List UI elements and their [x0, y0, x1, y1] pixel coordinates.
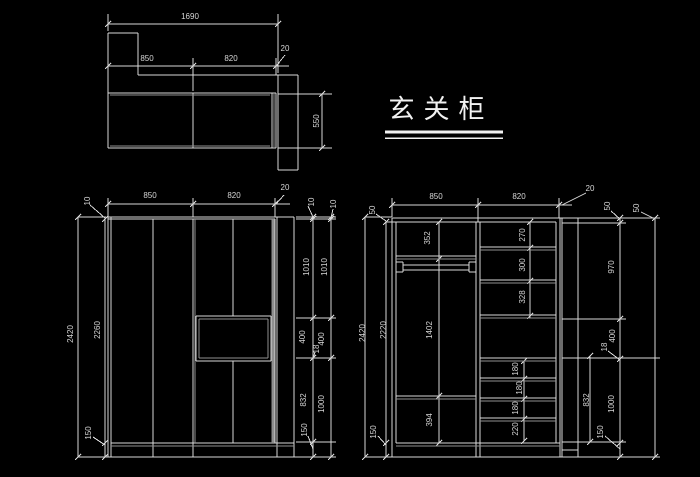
- dim-label: 50: [633, 204, 641, 213]
- dim-label: 400: [318, 332, 326, 345]
- dim-label: 150: [370, 425, 378, 438]
- dim-label: 2420: [67, 325, 75, 343]
- dim-label: 832: [583, 393, 591, 406]
- cad-canvas: 玄关柜 1690 850 820 20 550 850 820 20 2420 …: [0, 0, 700, 477]
- dim-label: 180: [516, 381, 524, 394]
- dim-label: 180: [512, 362, 520, 375]
- dim-label: 1690: [181, 13, 199, 21]
- dim-label: 50: [604, 202, 612, 211]
- dim-label: 300: [519, 258, 527, 271]
- dim-label: 400: [299, 330, 307, 343]
- dim-label: 328: [519, 290, 527, 303]
- dim-label: 20: [586, 185, 595, 193]
- dim-label: 180: [512, 401, 520, 414]
- page-title: 玄关柜: [388, 97, 493, 123]
- dim-label: 150: [597, 425, 605, 438]
- plan-view-lines: [105, 14, 332, 170]
- internal-view-secondary-lines: [396, 250, 560, 446]
- internal-view-lines: [362, 193, 660, 460]
- front-view-secondary-lines: [111, 219, 294, 446]
- dim-label: 50: [369, 206, 377, 215]
- drawing-lines: [0, 0, 700, 477]
- dim-label: 150: [85, 426, 93, 439]
- dim-label: 850: [140, 55, 153, 63]
- title-underline: [385, 132, 503, 138]
- dim-label: 270: [519, 228, 527, 241]
- dim-label: 850: [143, 192, 156, 200]
- dim-label: 1402: [426, 321, 434, 339]
- dim-label: 2220: [380, 321, 388, 339]
- dim-label: 832: [300, 393, 308, 406]
- dim-label: 10: [330, 200, 338, 209]
- dim-label: 220: [512, 422, 520, 435]
- dim-label: 1000: [318, 395, 326, 413]
- dim-label: 1010: [321, 258, 329, 276]
- dim-label: 1010: [303, 258, 311, 276]
- dim-label: 2420: [359, 324, 367, 342]
- dim-label: 20: [281, 45, 290, 53]
- dim-label: 20: [281, 184, 290, 192]
- dim-label: 1000: [608, 395, 616, 413]
- dim-label: 820: [224, 55, 237, 63]
- dim-label: 10: [308, 198, 316, 207]
- dim-label: 394: [426, 413, 434, 426]
- dim-label: 2260: [94, 321, 102, 339]
- front-view-lines: [75, 195, 336, 460]
- dim-label: 352: [424, 231, 432, 244]
- dim-label: 400: [609, 329, 617, 342]
- dim-label: 820: [512, 193, 525, 201]
- dim-label: 18: [601, 343, 609, 352]
- dim-label: 18: [313, 345, 321, 354]
- dim-label: 850: [429, 193, 442, 201]
- plan-view-secondary-lines: [110, 93, 274, 148]
- dim-label: 10: [84, 197, 92, 206]
- dim-label: 820: [227, 192, 240, 200]
- dim-label: 550: [313, 114, 321, 127]
- dim-label: 970: [608, 260, 616, 273]
- dim-label: 150: [301, 423, 309, 436]
